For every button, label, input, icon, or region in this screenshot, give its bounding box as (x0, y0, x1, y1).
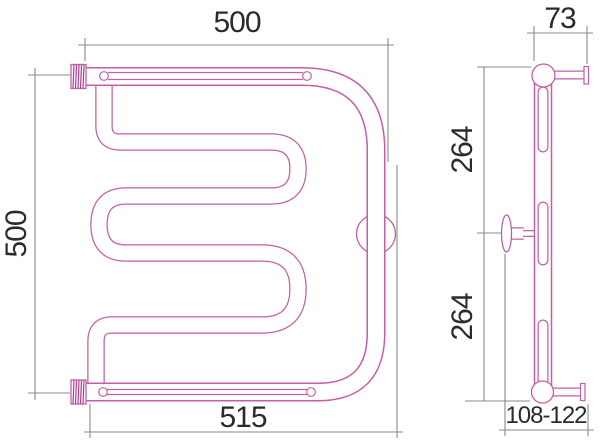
pipe-end-cap-bottom (581, 384, 586, 401)
dimension-span-upper: 264 (446, 126, 479, 173)
dimension-height-left: 500 (0, 210, 33, 257)
bracket-flange (502, 215, 512, 252)
dimension-span-lower: 264 (446, 293, 479, 340)
frame-tube (85, 77, 376, 393)
front-view: 500 500 515 (0, 6, 403, 438)
joint-circle (99, 388, 108, 397)
joint-circle (303, 72, 312, 81)
serpentine-tube (96, 80, 298, 396)
side-bracket (502, 215, 537, 252)
drawing-sheet: 500 500 515 (0, 0, 600, 448)
dimension-depth: 73 (544, 2, 576, 35)
threaded-fitting-bottom (71, 380, 86, 404)
wall-pipes (553, 67, 589, 401)
pipe-end-cap-top (584, 67, 589, 85)
dimension-width-top: 500 (213, 6, 260, 39)
dimension-wall-distance: 108-122 (505, 402, 587, 429)
joint-circle (307, 388, 316, 397)
towel-radiator-drawing: 500 500 515 (0, 0, 600, 448)
threaded-fitting-top (71, 65, 86, 89)
rail-top-circle (532, 64, 555, 87)
joint-circle (100, 72, 109, 81)
dimension-width-bottom: 515 (219, 401, 266, 434)
rail-bottom-circle (532, 381, 554, 403)
side-view: 73 264 264 108-122 (446, 2, 594, 436)
